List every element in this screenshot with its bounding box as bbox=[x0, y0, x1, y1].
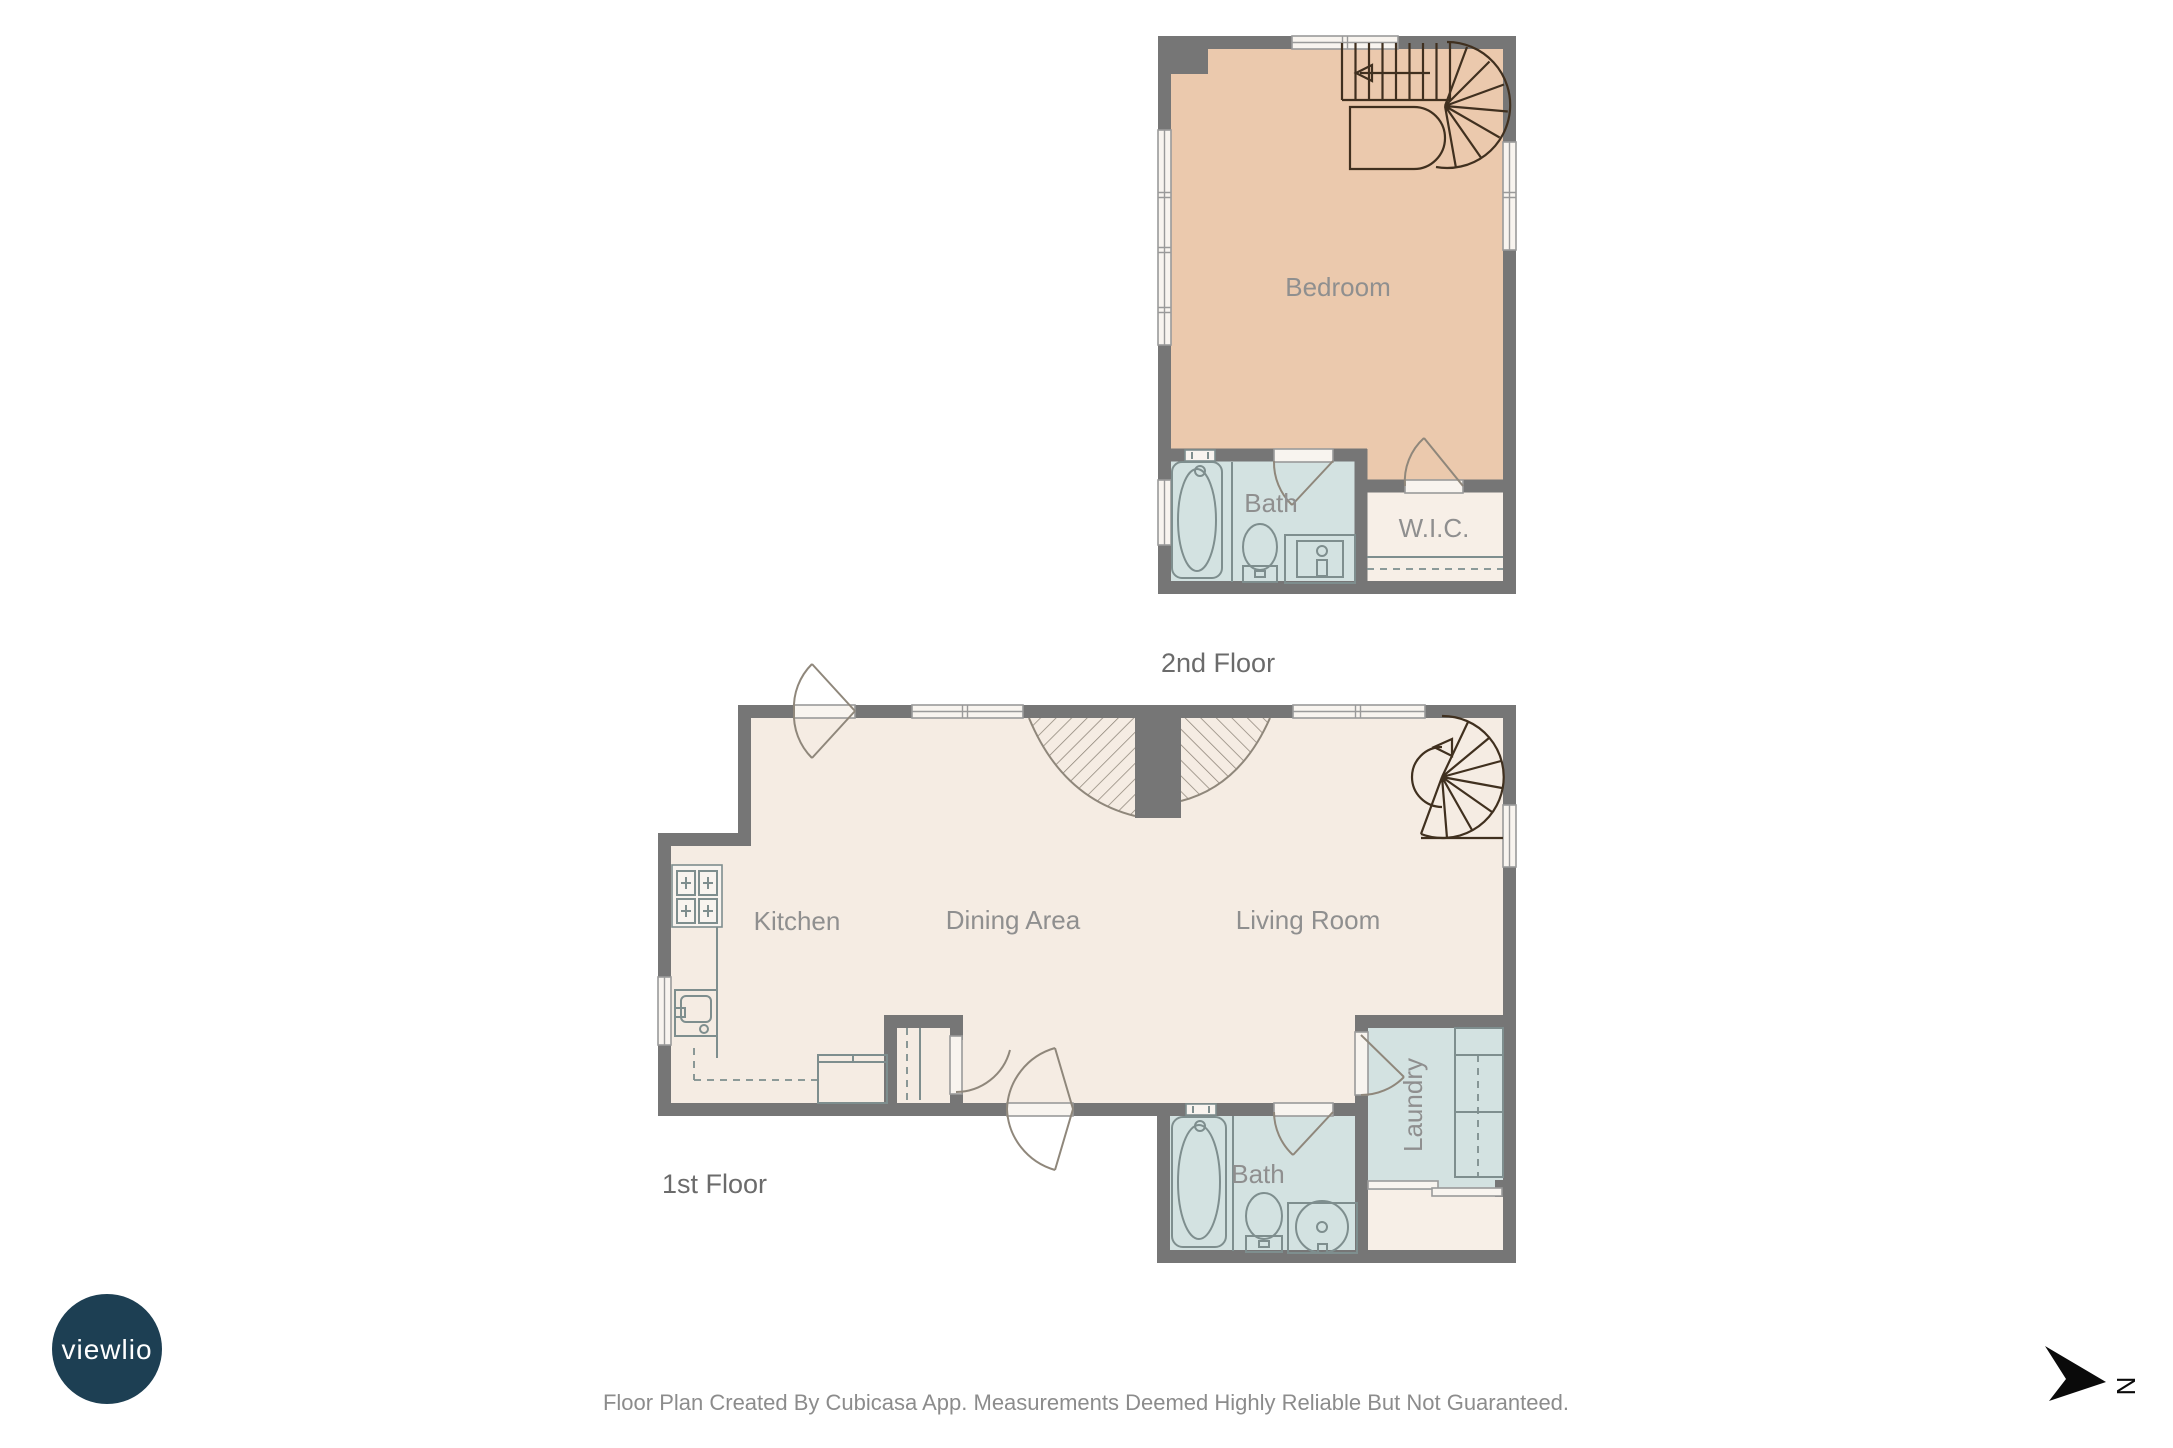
north-arrow-icon bbox=[2045, 1346, 2106, 1401]
logo-text: viewlio bbox=[61, 1334, 152, 1365]
window bbox=[912, 705, 1023, 718]
window bbox=[1158, 130, 1171, 345]
first-floor-plan: Kitchen Dining Area Living Room Bath Lau… bbox=[658, 664, 1516, 1257]
second-floor-title: 2nd Floor bbox=[1161, 648, 1275, 678]
dining-label: Dining Area bbox=[946, 905, 1081, 935]
wic-label: W.I.C. bbox=[1399, 513, 1470, 543]
window bbox=[658, 977, 671, 1045]
corner-wall-block-2f bbox=[1158, 36, 1208, 74]
floor-plan-canvas: Bedroom Bath W.I.C. 2nd Floor bbox=[0, 0, 2173, 1448]
laundry-closet-area bbox=[1368, 1190, 1503, 1257]
bedroom-area bbox=[1164, 42, 1510, 486]
bath-area-2f bbox=[1164, 455, 1361, 588]
first-floor-title: 1st Floor bbox=[662, 1169, 767, 1199]
viewlio-logo: viewlio bbox=[52, 1294, 162, 1404]
bedroom-label: Bedroom bbox=[1285, 272, 1391, 302]
window bbox=[1503, 805, 1516, 867]
stove-icon bbox=[672, 865, 722, 927]
living-label: Living Room bbox=[1236, 905, 1381, 935]
window bbox=[1293, 705, 1425, 718]
footer-disclaimer: Floor Plan Created By Cubicasa App. Meas… bbox=[603, 1390, 1569, 1415]
compass: N bbox=[2045, 1346, 2141, 1401]
bath-label-2f: Bath bbox=[1244, 488, 1298, 518]
laundry-area bbox=[1368, 1028, 1503, 1190]
sliding-door-jamb bbox=[1355, 1180, 1368, 1197]
north-label: N bbox=[2111, 1377, 2141, 1396]
laundry-label: Laundry bbox=[1398, 1058, 1428, 1152]
second-floor-plan: Bedroom Bath W.I.C. 2nd Floor bbox=[1158, 36, 1516, 678]
stair-wall-stub bbox=[1135, 705, 1181, 818]
floor-plan-page: Bedroom Bath W.I.C. 2nd Floor bbox=[0, 0, 2173, 1448]
kitchen-label: Kitchen bbox=[754, 906, 841, 936]
window bbox=[1158, 480, 1171, 545]
window bbox=[1503, 142, 1516, 250]
bath-label-1f: Bath bbox=[1231, 1159, 1285, 1189]
